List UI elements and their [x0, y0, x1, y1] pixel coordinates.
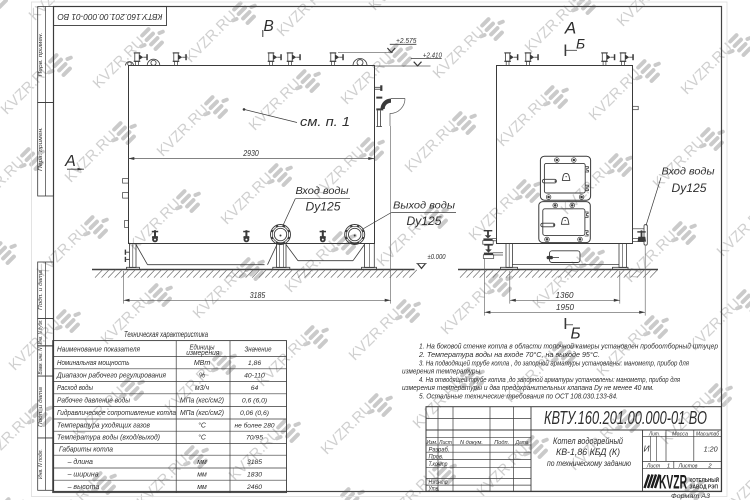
- svg-text:1:20: 1:20: [704, 445, 719, 454]
- svg-text:Масштаб: Масштаб: [696, 431, 720, 437]
- svg-text:Номинальная мощность: Номинальная мощность: [57, 360, 130, 367]
- svg-text:– ширина: – ширина: [67, 472, 99, 479]
- svg-text:Перв. примен.: Перв. примен.: [38, 127, 44, 171]
- svg-text:+2.410: +2.410: [423, 52, 442, 59]
- svg-text:Т.контр: Т.контр: [429, 462, 449, 468]
- svg-text:Пров.: Пров.: [429, 455, 444, 461]
- svg-text:А: А: [564, 19, 576, 38]
- svg-text:1,86: 1,86: [248, 360, 261, 367]
- svg-text:Инв. N дубл.: Инв. N дубл.: [38, 320, 44, 345]
- svg-text:+2.575: +2.575: [396, 38, 417, 45]
- svg-text:Дата: Дата: [515, 440, 530, 446]
- svg-text:70/95: 70/95: [246, 435, 263, 442]
- svg-text:Габариты котла: Габариты котла: [59, 446, 113, 454]
- svg-text:Формат А3: Формат А3: [671, 494, 711, 500]
- svg-text:Инв. N подл.: Инв. N подл.: [38, 449, 44, 479]
- svg-text:Значение: Значение: [245, 347, 272, 354]
- svg-text:МПа (кгс/см2): МПа (кгс/см2): [180, 410, 224, 417]
- svg-text:м3/ч: м3/ч: [195, 385, 210, 392]
- svg-text:Расход воды: Расход воды: [57, 384, 94, 392]
- svg-text:64: 64: [251, 385, 259, 392]
- svg-text:Н.контр: Н.контр: [429, 480, 449, 486]
- svg-text:не более 280: не более 280: [235, 422, 275, 430]
- svg-text:Перв. примен.: Перв. примен.: [38, 33, 44, 77]
- svg-text:Гидравлическое сопротивление к: Гидравлическое сопротивление котла: [57, 409, 176, 417]
- svg-text:МВт: МВт: [194, 360, 211, 367]
- svg-text:Взам. инв. N: Взам. инв. N: [38, 347, 44, 374]
- svg-text:1: 1: [667, 463, 670, 469]
- svg-text:Изм.: Изм.: [427, 440, 438, 446]
- svg-text:Вход воды: Вход воды: [296, 185, 349, 197]
- svg-text:МПа (кгс/см2): МПа (кгс/см2): [180, 398, 224, 405]
- svg-text:N докум.: N докум.: [460, 440, 483, 446]
- svg-text:Подп. и дата: Подп. и дата: [38, 270, 44, 310]
- svg-text:2460: 2460: [246, 484, 262, 491]
- svg-text:КОТЕЛЬНЫЙ: КОТЕЛЬНЫЙ: [690, 476, 720, 484]
- svg-text:Утв.: Утв.: [428, 487, 440, 493]
- svg-text:по техническому заданию: по техническому заданию: [547, 458, 631, 468]
- svg-text:Температура уходящих газов: Температура уходящих газов: [57, 422, 150, 430]
- svg-text:°С: °С: [198, 422, 207, 430]
- svg-text:°С: °С: [198, 434, 207, 442]
- svg-text:И: И: [644, 443, 651, 453]
- svg-text:Лист: Лист: [438, 440, 452, 446]
- svg-text:КВТУ.160.201.00.000-01 ВО: КВТУ.160.201.00.000-01 ВО: [544, 408, 707, 428]
- svg-text:Dy125: Dy125: [407, 216, 443, 228]
- svg-text:Подп.: Подп.: [494, 440, 509, 446]
- svg-text:А: А: [64, 153, 76, 170]
- svg-text:КВТУ.160.201.00.000-01 ВО: КВТУ.160.201.00.000-01 ВО: [57, 12, 163, 22]
- svg-text:Разраб.: Разраб.: [429, 447, 450, 453]
- svg-text:Техническая характеристика: Техническая характеристика: [124, 330, 208, 339]
- svg-text:Подп. и дата: Подп. и дата: [38, 387, 44, 427]
- svg-text:Температура воды (вход/выход): Температура воды (вход/выход): [57, 434, 160, 442]
- svg-text:Рабочее давление воды: Рабочее давление воды: [57, 397, 131, 405]
- svg-text:2930: 2930: [242, 149, 259, 158]
- svg-text:Лист: Лист: [646, 463, 661, 469]
- svg-text:Наименование показателя: Наименование показателя: [57, 347, 140, 354]
- svg-text:измерения: измерения: [186, 350, 219, 357]
- svg-text:КВ-1,86 КБД (К): КВ-1,86 КБД (К): [556, 447, 620, 457]
- svg-text:– длина: – длина: [67, 458, 93, 466]
- svg-text:мм: мм: [197, 472, 207, 479]
- svg-text:Масса: Масса: [672, 431, 688, 437]
- svg-text:см. п. 1: см. п. 1: [300, 115, 350, 129]
- svg-text:Листов: Листов: [678, 463, 698, 469]
- svg-text:KVZR: KVZR: [659, 473, 687, 494]
- svg-text:5. Остальные технические треб: 5. Остальные технические требования по О…: [419, 391, 618, 400]
- svg-text:1830: 1830: [247, 472, 262, 479]
- svg-text:40-110: 40-110: [244, 373, 265, 380]
- svg-text:3185: 3185: [247, 459, 262, 466]
- svg-text:В: В: [263, 18, 273, 35]
- svg-text:0,6 (6,0): 0,6 (6,0): [242, 398, 267, 405]
- svg-text:3185: 3185: [250, 291, 266, 300]
- svg-text:– высота: – высота: [67, 484, 100, 491]
- svg-text:Лит.: Лит.: [648, 431, 660, 437]
- svg-text:мм: мм: [197, 484, 207, 491]
- svg-text:Dy125: Dy125: [306, 202, 342, 214]
- svg-text:мм: мм: [197, 459, 207, 466]
- svg-text:Б: Б: [576, 36, 585, 52]
- svg-text:ЗАВОД РЭП: ЗАВОД РЭП: [690, 484, 719, 490]
- svg-text:Б: Б: [570, 326, 580, 343]
- svg-text:Вход воды: Вход воды: [662, 166, 715, 178]
- svg-text:Dy125: Dy125: [672, 183, 708, 195]
- svg-text:Диапазон рабочего регулировани: Диапазон рабочего регулирования: [56, 372, 166, 380]
- svg-text:Выход воды: Выход воды: [393, 199, 455, 211]
- svg-text:%: %: [199, 373, 205, 380]
- svg-text:Котел водогрейный: Котел водогрейный: [553, 436, 623, 446]
- svg-text:1360: 1360: [556, 291, 575, 300]
- svg-text:1950: 1950: [556, 303, 575, 312]
- svg-text:0,06 (0,6): 0,06 (0,6): [240, 410, 269, 417]
- svg-text:±0.000: ±0.000: [428, 254, 446, 261]
